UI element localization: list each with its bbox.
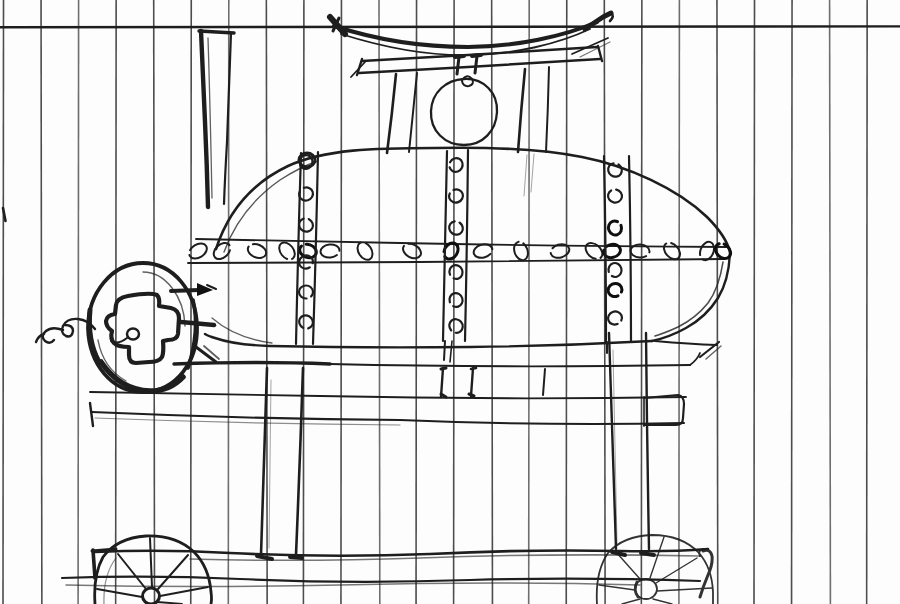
paper-rule [641, 0, 642, 604]
scanned-sketch-page [0, 0, 900, 604]
rivet-band-horizontal [187, 239, 734, 263]
rivet [246, 241, 268, 260]
paper-rules [3, 0, 867, 604]
paper-rule [792, 0, 793, 604]
right-wheel [597, 535, 713, 604]
rivet [320, 243, 340, 258]
rivet-strip-left [296, 152, 318, 344]
paper-rule [830, 0, 831, 604]
stand-frame [90, 341, 721, 426]
roof-beam [351, 38, 610, 77]
paper-rule [867, 0, 868, 604]
cross-hatch [106, 294, 179, 363]
rivet [606, 219, 623, 237]
rivet [447, 156, 465, 174]
sketch-canvas [0, 0, 900, 604]
rivet [448, 291, 465, 308]
rivet [447, 219, 466, 238]
coil-handle [36, 319, 95, 343]
paper-rule [154, 0, 155, 604]
paper-rule [717, 0, 718, 604]
paper-rule [454, 0, 455, 604]
rivet [447, 316, 466, 335]
paper-rule [754, 0, 755, 604]
paper-rule [3, 0, 4, 604]
paper-rule [303, 0, 304, 604]
rivet [187, 241, 210, 262]
rivet [447, 187, 465, 204]
bracket-box [644, 395, 684, 426]
pagoda-roof [330, 13, 613, 196]
lower-rails [62, 549, 708, 587]
rivet [606, 281, 624, 299]
rivet [211, 240, 234, 262]
pointer-arrow [171, 283, 216, 296]
rivet [606, 309, 624, 326]
paper-rule [341, 0, 342, 604]
paper-rule [379, 0, 380, 604]
paper-rule [266, 0, 267, 604]
paper-rule [679, 0, 680, 604]
paper-rule [78, 0, 79, 604]
rivet [607, 262, 623, 279]
rivet [583, 240, 606, 262]
paper-rule [41, 0, 42, 604]
rivet [512, 240, 531, 262]
rivet [447, 263, 464, 281]
rivet [299, 285, 313, 298]
rivet [276, 240, 298, 263]
paper-rule [566, 0, 567, 604]
left-wheel [95, 536, 212, 604]
paper-rule [529, 0, 530, 604]
rivet [607, 188, 624, 204]
door-knob [127, 329, 139, 340]
